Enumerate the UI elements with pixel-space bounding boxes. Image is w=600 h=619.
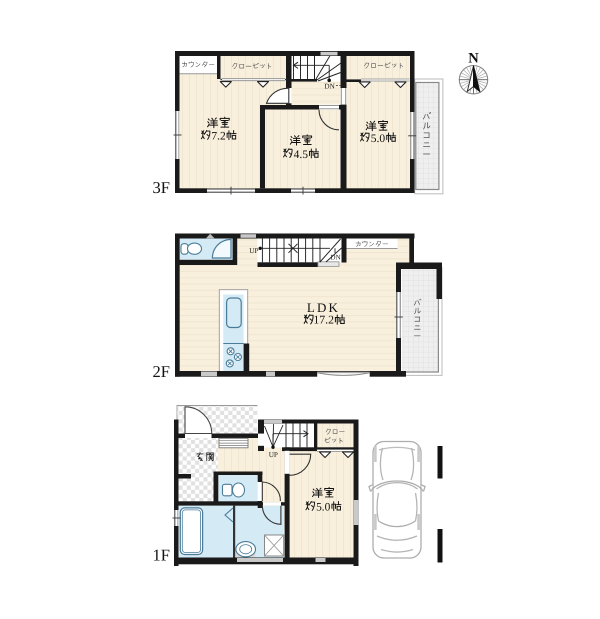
svg-text:UP: UP — [249, 247, 258, 255]
svg-text:DN: DN — [324, 82, 335, 90]
svg-text:17.2: 17.2 — [313, 313, 334, 327]
svg-text:5.0: 5.0 — [371, 133, 386, 145]
svg-text:DN: DN — [331, 254, 341, 262]
svg-text:7.2: 7.2 — [211, 131, 226, 143]
svg-text:N: N — [468, 51, 479, 67]
svg-text:2F: 2F — [152, 362, 169, 381]
svg-text:5.0: 5.0 — [316, 501, 331, 513]
svg-text:1F: 1F — [152, 546, 169, 565]
svg-text:4.5: 4.5 — [294, 149, 309, 161]
svg-text:UP: UP — [269, 451, 278, 459]
svg-text:3F: 3F — [152, 178, 169, 197]
